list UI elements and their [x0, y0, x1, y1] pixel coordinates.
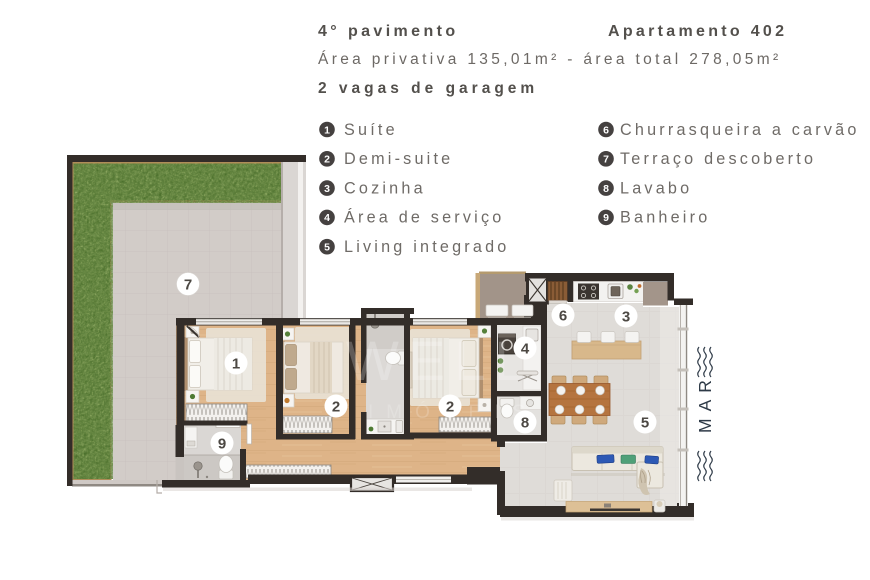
- svg-text:WELL: WELL: [346, 329, 535, 392]
- svg-text:MAR: MAR: [695, 373, 715, 433]
- svg-text:Área de serviço: Área de serviço: [344, 208, 504, 227]
- svg-text:2 vagas de garagem: 2 vagas de garagem: [318, 80, 538, 97]
- svg-text:3: 3: [622, 308, 630, 325]
- svg-text:Terraço descoberto: Terraço descoberto: [620, 150, 816, 168]
- svg-text:8: 8: [521, 414, 529, 431]
- svg-text:5: 5: [324, 242, 330, 254]
- svg-text:2: 2: [446, 398, 454, 415]
- svg-text:Churrasqueira a carvão: Churrasqueira a carvão: [620, 121, 860, 139]
- svg-text:3: 3: [324, 183, 330, 195]
- svg-text:Living integrado: Living integrado: [344, 238, 510, 256]
- svg-text:8: 8: [603, 183, 609, 195]
- svg-text:2: 2: [332, 398, 340, 415]
- svg-text:Apartamento 402: Apartamento 402: [608, 23, 787, 40]
- svg-text:Lavabo: Lavabo: [620, 179, 692, 197]
- svg-text:Cozinha: Cozinha: [344, 179, 426, 197]
- svg-text:9: 9: [603, 212, 609, 224]
- svg-text:7: 7: [603, 154, 609, 166]
- svg-text:Suíte: Suíte: [344, 121, 398, 139]
- svg-text:1: 1: [324, 124, 330, 136]
- svg-text:4: 4: [521, 340, 530, 357]
- svg-text:7: 7: [184, 276, 192, 293]
- svg-text:Demi-suite: Demi-suite: [344, 150, 453, 168]
- svg-text:4: 4: [324, 212, 330, 224]
- svg-text:1: 1: [232, 355, 240, 372]
- svg-text:5: 5: [641, 414, 649, 431]
- svg-text:4° pavimento: 4° pavimento: [318, 23, 459, 40]
- svg-text:6: 6: [559, 307, 567, 324]
- svg-text:Banheiro: Banheiro: [620, 209, 710, 227]
- svg-text:Área privativa 135,01m² - área: Área privativa 135,01m² - área total 278…: [318, 51, 782, 68]
- svg-text:2: 2: [324, 154, 330, 166]
- svg-text:9: 9: [218, 435, 226, 452]
- svg-text:6: 6: [603, 124, 609, 136]
